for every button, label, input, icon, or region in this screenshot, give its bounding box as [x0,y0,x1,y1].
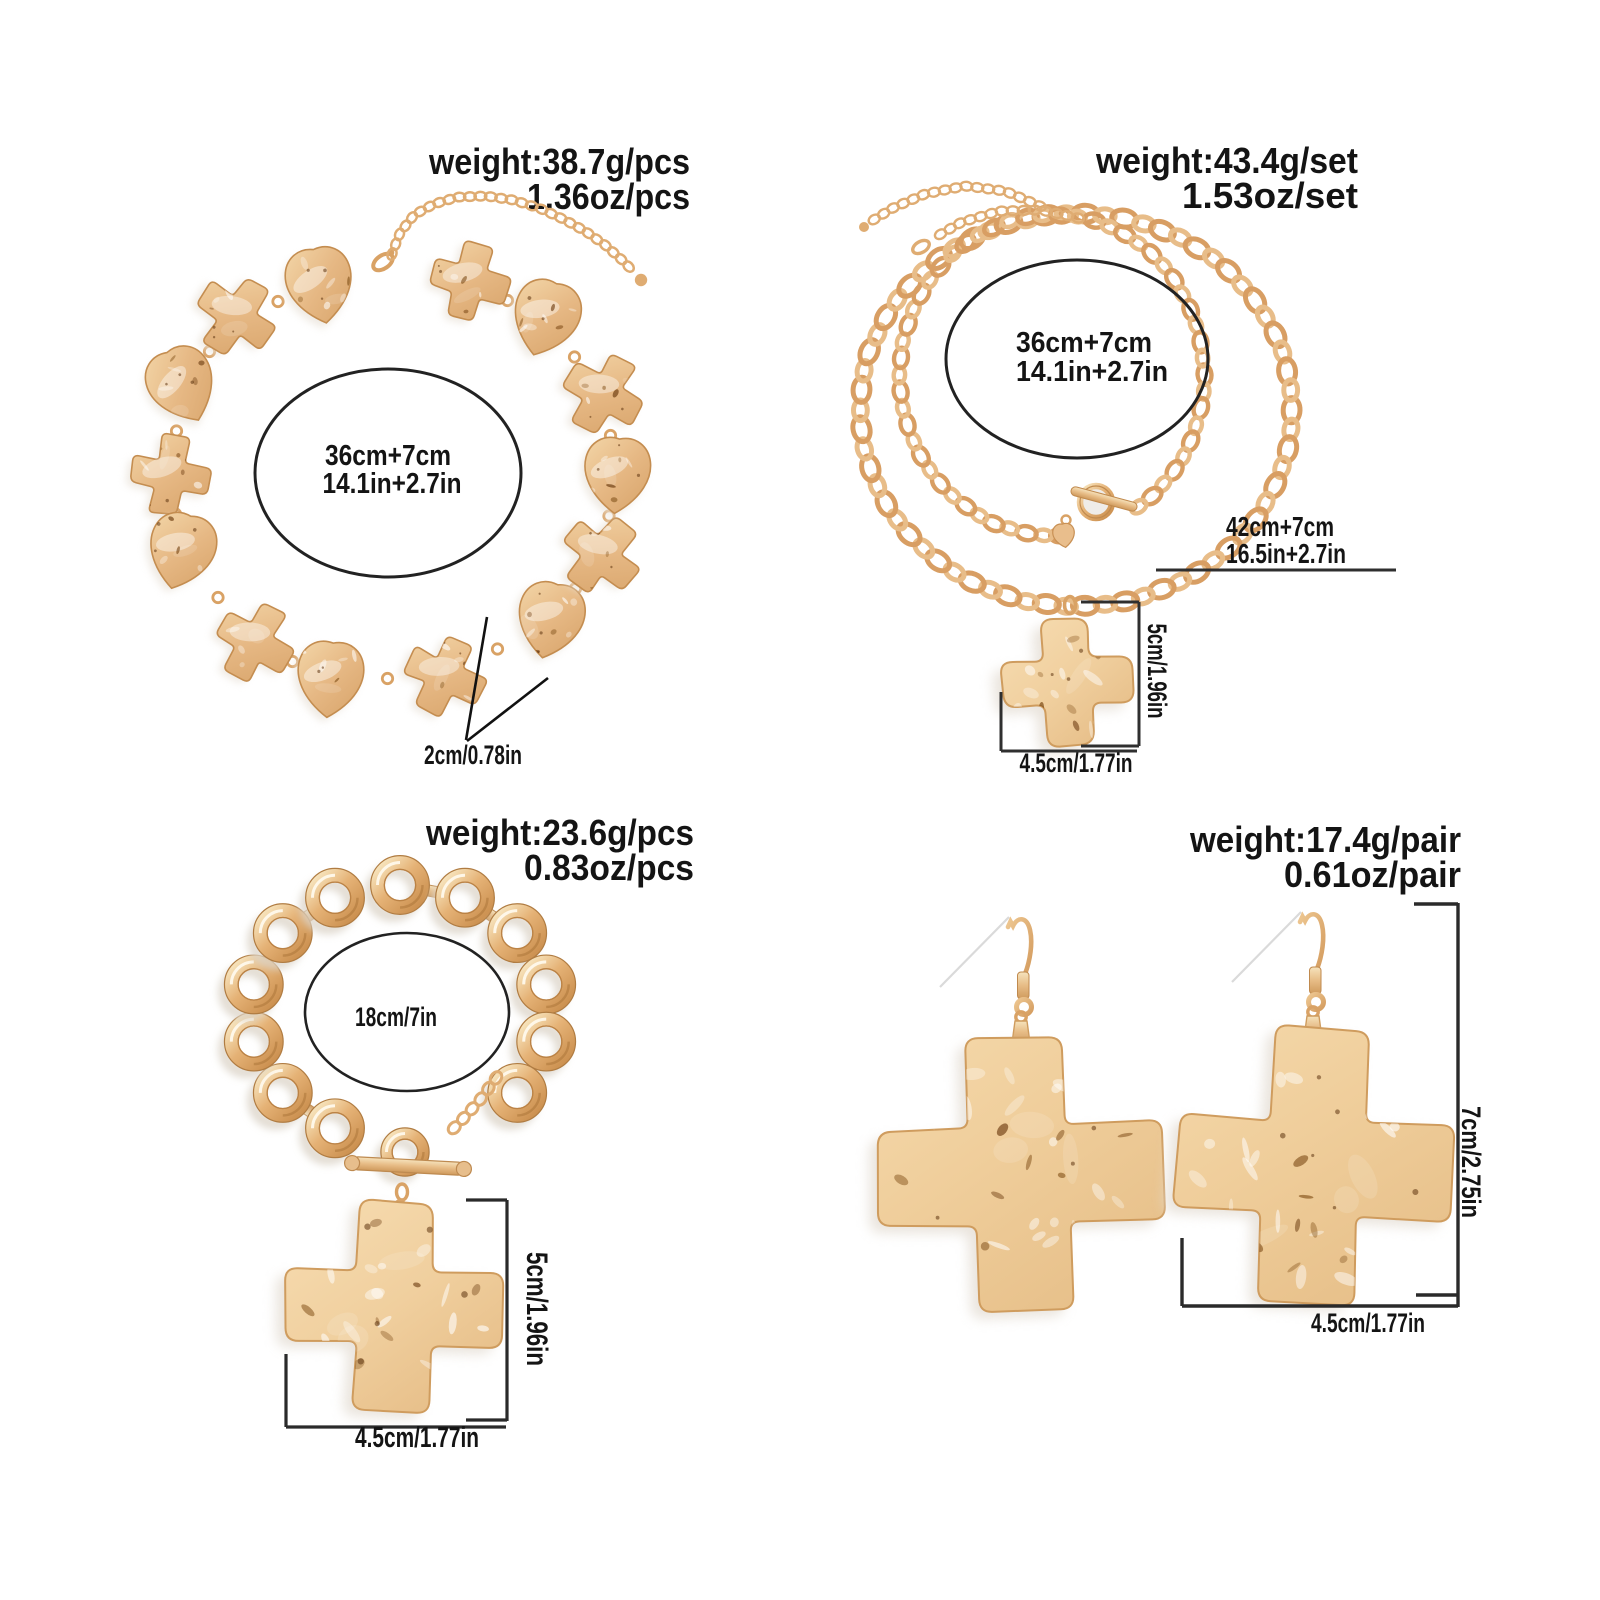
svg-text:0.83oz/pcs: 0.83oz/pcs [524,847,694,888]
svg-text:4.5cm/1.77in: 4.5cm/1.77in [355,1422,479,1454]
svg-text:14.1in+2.7in: 14.1in+2.7in [323,468,462,500]
svg-text:2cm/0.78in: 2cm/0.78in [424,740,522,770]
svg-text:1.53oz/set: 1.53oz/set [1182,175,1358,216]
svg-text:18cm/7in: 18cm/7in [355,1002,437,1032]
svg-text:5cm/1.96in: 5cm/1.96in [520,1252,553,1366]
svg-text:0.61oz/pair: 0.61oz/pair [1284,854,1461,895]
svg-text:14.1in+2.7in: 14.1in+2.7in [1016,356,1168,388]
svg-text:5cm/1.96in: 5cm/1.96in [1142,624,1172,719]
svg-text:4.5cm/1.77in: 4.5cm/1.77in [1311,1308,1425,1338]
svg-text:16.5in+2.7in: 16.5in+2.7in [1226,538,1346,569]
svg-text:1.36oz/pcs: 1.36oz/pcs [527,176,690,217]
svg-text:7cm/2.75in: 7cm/2.75in [1456,1106,1486,1218]
svg-text:4.5cm/1.77in: 4.5cm/1.77in [1020,748,1133,778]
svg-text:36cm+7cm: 36cm+7cm [1016,327,1152,359]
